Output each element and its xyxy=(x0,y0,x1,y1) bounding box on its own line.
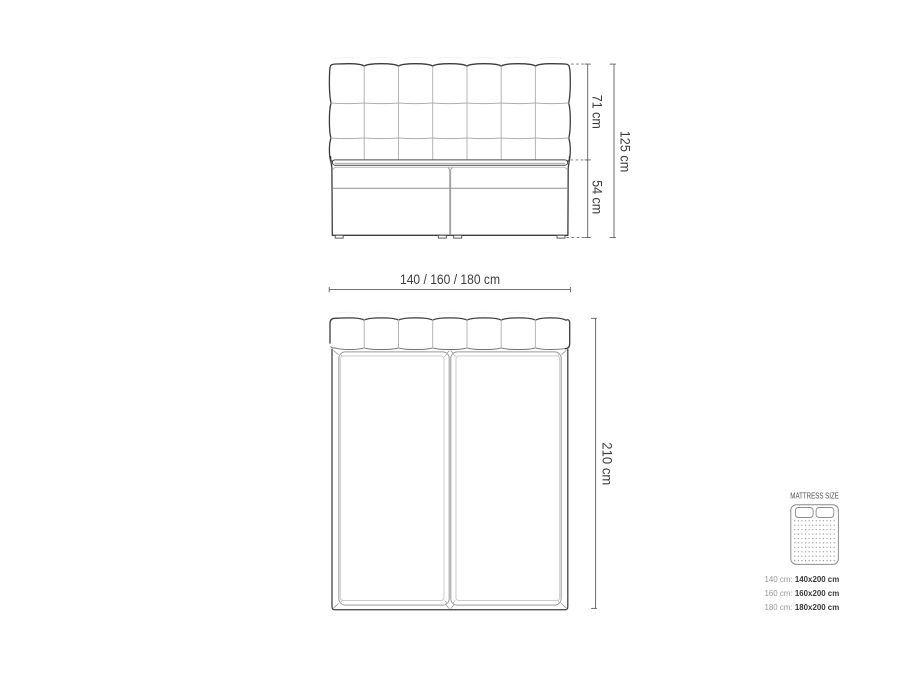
svg-text:160x200 cm: 160x200 cm xyxy=(795,589,839,598)
svg-text:140 / 160 / 180 cm: 140 / 160 / 180 cm xyxy=(400,271,500,287)
svg-text:210 cm: 210 cm xyxy=(600,442,616,485)
svg-text:MATTRESS SIZE: MATTRESS SIZE xyxy=(790,490,839,500)
svg-text:54 cm: 54 cm xyxy=(590,180,606,214)
svg-text:160 cm:: 160 cm: xyxy=(765,589,793,598)
svg-text:180 cm:: 180 cm: xyxy=(765,603,793,612)
svg-text:180x200 cm: 180x200 cm xyxy=(795,603,839,612)
svg-text:125 cm: 125 cm xyxy=(618,131,634,173)
svg-text:71 cm: 71 cm xyxy=(590,95,606,129)
svg-text:140 cm:: 140 cm: xyxy=(765,575,793,584)
svg-text:140x200 cm: 140x200 cm xyxy=(795,575,839,584)
